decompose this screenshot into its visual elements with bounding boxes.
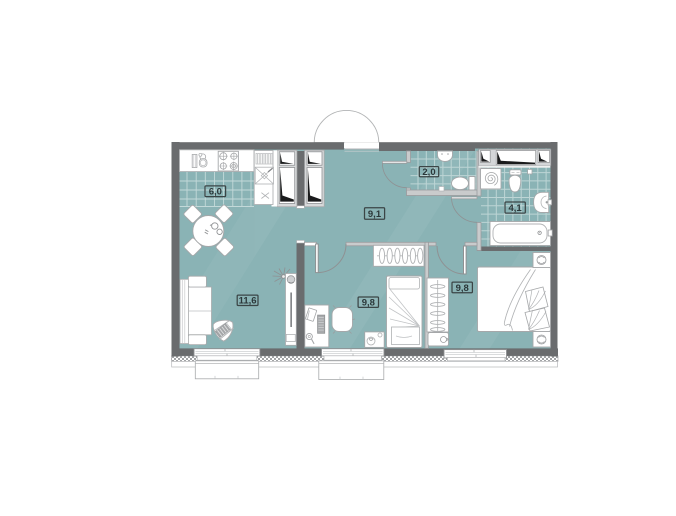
svg-text:11,6: 11,6 <box>239 296 257 307</box>
svg-text:4,1: 4,1 <box>508 203 522 214</box>
svg-text:9,8: 9,8 <box>362 298 375 309</box>
svg-text:2,0: 2,0 <box>422 167 435 178</box>
svg-text:9,1: 9,1 <box>368 209 382 220</box>
svg-text:6,0: 6,0 <box>209 187 222 198</box>
svg-text:9,8: 9,8 <box>456 283 469 294</box>
